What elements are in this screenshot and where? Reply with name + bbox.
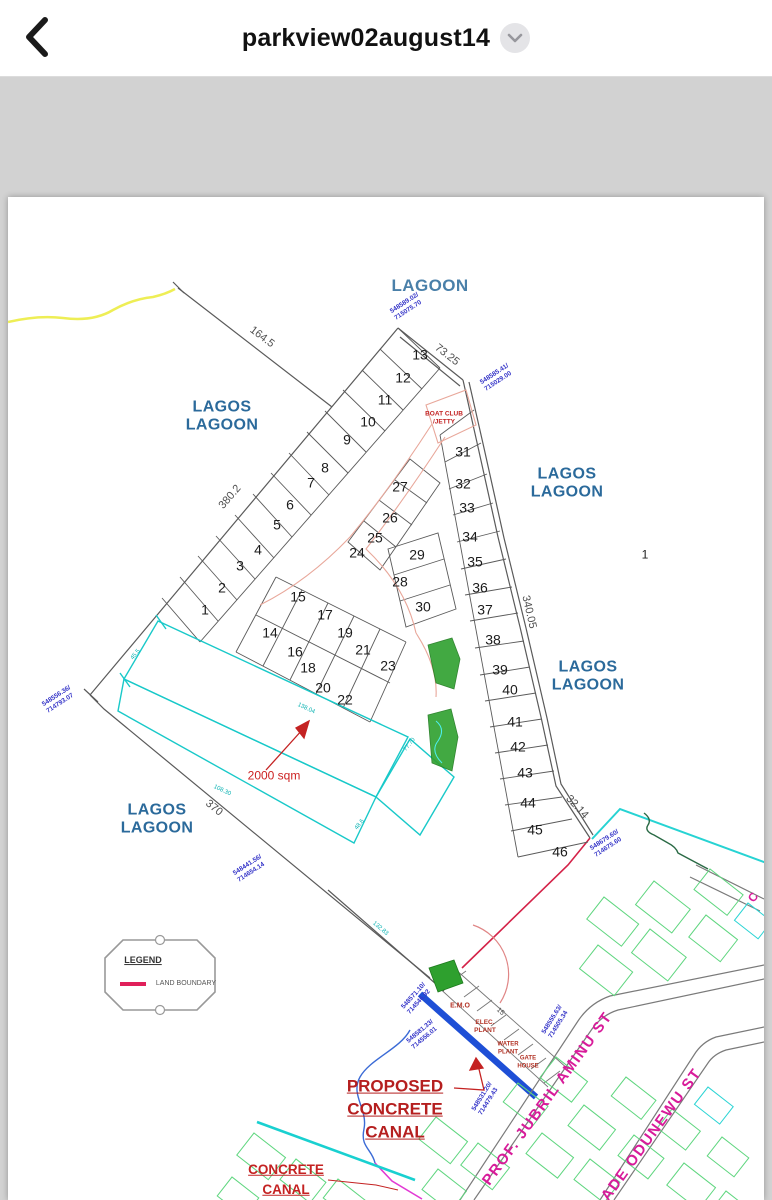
fac-line: GATE	[517, 1056, 538, 1064]
land-boundary-red-line	[462, 838, 590, 968]
adjacent-parcels-cyan	[694, 903, 764, 1124]
plot-number: 2	[218, 580, 226, 595]
plot-number: 9	[343, 432, 351, 447]
plot-number: 3	[236, 558, 244, 573]
plot-number: 28	[392, 574, 408, 589]
plot-number: 21	[355, 642, 371, 657]
plot-number: 12	[395, 370, 411, 385]
plot-number: 29	[409, 547, 425, 562]
plot-number: 8	[321, 460, 329, 475]
document-page[interactable]: LAGOON LAGOSLAGOON LAGOSLAGOON LAGOSLAGO…	[8, 197, 764, 1200]
boat-club-line: /JETTY	[425, 419, 463, 427]
lagoon-label-nw: LAGOSLAGOON	[186, 399, 259, 436]
gate-house-label: GATEHOUSE	[517, 1056, 538, 1071]
lagoon-label-ne: LAGOSLAGOON	[531, 466, 604, 503]
plot-number: 34	[462, 529, 478, 544]
toolbar-spacer	[0, 77, 772, 197]
plot-number: 5	[273, 517, 281, 532]
fac-line: WATER	[497, 1042, 518, 1050]
fac-line: HOUSE	[517, 1063, 538, 1071]
green-patch-lower	[428, 709, 458, 771]
lagoon-label-sw: LAGOSLAGOON	[121, 802, 194, 839]
outside-plot-number: 1	[642, 548, 649, 561]
shoreline-yellow	[8, 289, 175, 322]
lagoon-label-top: LAGOON	[391, 276, 468, 296]
plot-number: 32	[455, 476, 471, 491]
plot-number: 39	[492, 662, 508, 677]
plot-number: 37	[477, 602, 493, 617]
document-title-group: parkview02august14	[242, 23, 530, 53]
plot-number: 1	[201, 602, 209, 617]
plot-number: 23	[380, 658, 396, 673]
green-patch-upper	[428, 638, 460, 689]
page-title: parkview02august14	[242, 24, 490, 53]
lagoon-line: LAGOS	[552, 659, 625, 677]
legend-box	[105, 936, 215, 1015]
plot-number: 27	[392, 479, 408, 494]
lagoon-line: LAGOS	[531, 466, 604, 484]
lagoon-line: LAGOON	[552, 677, 625, 695]
boat-club-line: BOAT CLUB	[425, 411, 463, 419]
water-plant-label: WATERPLANT	[497, 1042, 518, 1057]
plot-number: 24	[349, 545, 365, 560]
lagoon-line: LAGOON	[186, 417, 259, 435]
chevron-down-icon	[507, 31, 523, 46]
plot-number: 36	[472, 580, 488, 595]
plot-number: 40	[502, 682, 518, 697]
plot-number: 46	[552, 844, 568, 859]
plot-number: 44	[520, 795, 536, 810]
lagoon-line: LAGOON	[531, 484, 604, 502]
lagoon-line: LAGOS	[186, 399, 259, 417]
lagoon-line: LAGOS	[121, 802, 194, 820]
proposed-line: CANAL	[365, 1122, 425, 1141]
proposed-line: PROPOSED	[347, 1077, 443, 1096]
plot-number: 13	[412, 347, 428, 362]
boat-club-label: BOAT CLUB/JETTY	[425, 411, 463, 428]
elec-plant-label: ELEC.PLANT	[474, 1019, 496, 1035]
canal-head-green	[429, 960, 463, 992]
canal-line: CANAL	[262, 1182, 309, 1197]
fac-line: PLANT	[474, 1027, 496, 1035]
plot-number: 22	[337, 692, 353, 707]
proposed-line: CONCRETE	[347, 1100, 442, 1119]
plot-number: 4	[254, 542, 262, 557]
plot-number: 11	[378, 392, 393, 407]
plot-number: 16	[287, 644, 303, 659]
plot-number: 30	[415, 599, 431, 614]
plot-number: 19	[337, 625, 353, 640]
plot-number: 26	[382, 510, 398, 525]
lagoon-line: LAGOON	[121, 820, 194, 838]
legend-item-land-boundary: LAND BOUNDARY	[156, 980, 216, 988]
lagoon-label-e: LAGOSLAGOON	[552, 659, 625, 696]
title-menu-button[interactable]	[500, 23, 530, 53]
plot-block-14-23	[236, 577, 406, 722]
plot-number: 31	[455, 444, 471, 459]
plot-number: 35	[467, 554, 483, 569]
emo-label: E.M.O	[450, 1003, 470, 1012]
plot-number: 6	[286, 497, 294, 512]
plot-number: 10	[360, 414, 376, 429]
fac-line: ELEC.	[474, 1019, 496, 1027]
plot-number: 33	[459, 500, 475, 515]
plot-number: 42	[510, 739, 526, 754]
nav-bar: parkview02august14	[0, 0, 772, 77]
plot-number: 14	[262, 625, 278, 640]
canal-line: CONCRETE	[248, 1162, 324, 1177]
plot-number: 7	[307, 475, 315, 490]
plot-number: 45	[527, 822, 543, 837]
chevron-left-icon	[21, 46, 51, 61]
fac-line: PLANT	[497, 1049, 518, 1057]
plot-number: 43	[517, 765, 533, 780]
proposed-canal-label: PROPOSEDCONCRETECANAL	[347, 1076, 443, 1145]
concrete-canal-label: CONCRETECANAL	[248, 1160, 324, 1200]
legend-title: LEGEND	[124, 956, 162, 966]
plot-number: 38	[485, 632, 501, 647]
back-button[interactable]	[14, 14, 58, 62]
plot-number: 20	[315, 680, 331, 695]
plot-number: 17	[317, 607, 333, 622]
area-label: 2000 sqm	[248, 769, 301, 782]
plot-number: 41	[507, 714, 523, 729]
survey-linework	[8, 197, 764, 1200]
plot-number: 25	[367, 530, 383, 545]
plot-number: 18	[300, 660, 316, 675]
plot-number: 15	[290, 589, 306, 604]
turning-arc	[473, 925, 509, 1003]
